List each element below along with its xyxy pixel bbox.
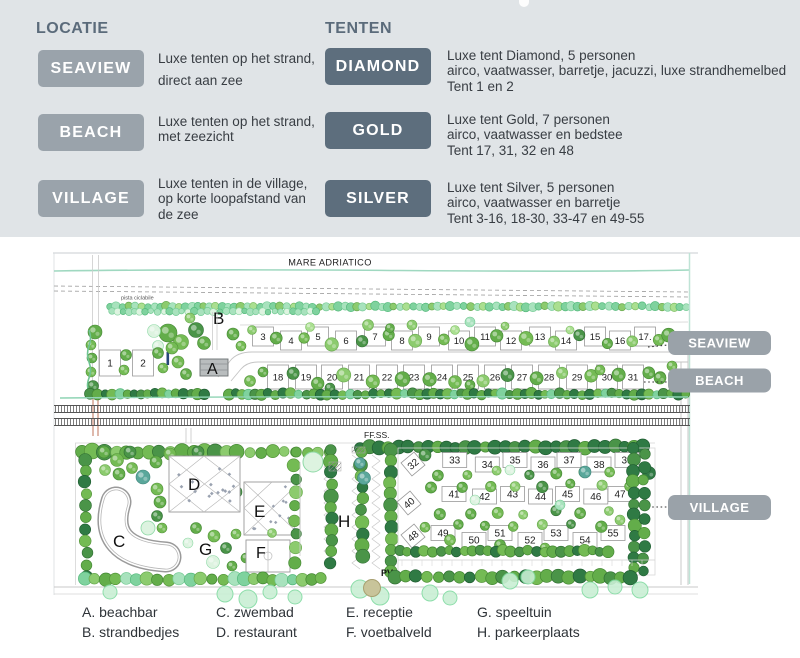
svg-text:20: 20 (327, 372, 338, 383)
svg-text:45: 45 (562, 490, 574, 501)
svg-text:2: 2 (140, 359, 146, 370)
svg-text:G: G (199, 540, 212, 559)
svg-text:51: 51 (494, 529, 506, 540)
svg-text:36: 36 (537, 460, 549, 471)
svg-text:C: C (113, 532, 125, 551)
svg-text:VILLAGE: VILLAGE (690, 500, 750, 515)
svg-text:11: 11 (480, 332, 490, 343)
svg-text:FF.SS.: FF.SS. (364, 430, 390, 440)
svg-text:9: 9 (426, 332, 431, 343)
svg-text:33: 33 (449, 456, 461, 467)
svg-text:44: 44 (535, 492, 547, 503)
svg-text:5: 5 (315, 332, 320, 343)
svg-text:4: 4 (288, 336, 293, 347)
svg-text:26: 26 (490, 372, 501, 383)
svg-text:8: 8 (399, 336, 404, 347)
svg-text:47: 47 (614, 490, 626, 501)
svg-text:18: 18 (273, 372, 284, 383)
svg-text:24: 24 (437, 372, 448, 383)
svg-text:29: 29 (572, 372, 583, 383)
svg-text:MARE ADRIATICO: MARE ADRIATICO (288, 258, 372, 268)
svg-text:BEACH: BEACH (695, 373, 744, 388)
svg-text:37: 37 (563, 456, 575, 467)
svg-text:34: 34 (482, 460, 494, 471)
svg-text:E: E (254, 502, 265, 521)
svg-text:55: 55 (607, 529, 619, 540)
svg-text:22: 22 (382, 372, 393, 383)
svg-text:7: 7 (372, 332, 377, 343)
svg-text:52: 52 (524, 536, 536, 547)
svg-text:19: 19 (301, 372, 312, 383)
svg-text:16: 16 (615, 336, 626, 347)
svg-text:12: 12 (506, 336, 517, 347)
svg-text:28: 28 (544, 372, 555, 383)
svg-text:46: 46 (590, 492, 602, 503)
svg-text:1: 1 (107, 359, 113, 370)
svg-text:50: 50 (468, 536, 480, 547)
svg-text:27: 27 (517, 372, 528, 383)
svg-text:23: 23 (409, 372, 420, 383)
svg-text:14: 14 (561, 336, 572, 347)
svg-text:13: 13 (535, 332, 546, 343)
svg-text:15: 15 (590, 332, 601, 343)
svg-text:42: 42 (479, 492, 491, 503)
svg-text:3: 3 (260, 332, 265, 343)
svg-text:SEAVIEW: SEAVIEW (688, 336, 751, 351)
svg-text:17.: 17. (638, 332, 651, 343)
svg-text:A: A (207, 361, 218, 378)
svg-text:38: 38 (593, 460, 605, 471)
svg-text:31: 31 (628, 372, 639, 383)
svg-text:H: H (338, 512, 350, 531)
svg-text:pista ciclabile: pista ciclabile (121, 296, 154, 302)
svg-text:F: F (256, 545, 266, 562)
svg-text:D: D (188, 475, 200, 494)
svg-text:10: 10 (454, 336, 465, 347)
svg-text:6: 6 (343, 336, 348, 347)
svg-text:B: B (213, 309, 224, 328)
svg-text:21: 21 (354, 372, 365, 383)
svg-text:53: 53 (550, 529, 562, 540)
